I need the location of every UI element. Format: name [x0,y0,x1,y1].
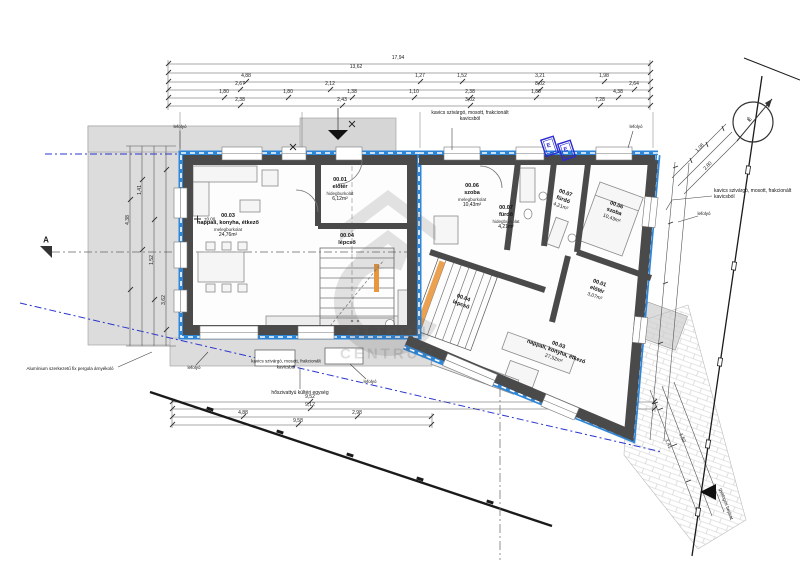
dim-label: 1,41 [137,185,143,195]
note-pergola: Alumínium szerkezetű fix pergola árnyéko… [26,366,113,372]
dim-label: 4,38 [125,215,131,225]
section-marker-label: A [43,236,49,245]
dim-label: 1,52 [149,255,155,265]
note-gravel-right: kavics szivárgó, mosott, frakcionált kav… [714,188,800,201]
plan-drawing [0,0,800,564]
note-gravel-left: kavics szivárgó, mosott, frakcionált kav… [247,358,325,369]
dim-label: 9,12 [305,402,315,408]
dim-label: 4,88 [238,410,248,416]
note-heat-pump: hőszivattyú kültéri egység [271,390,328,396]
dim-label: 2,64 [629,81,639,87]
watermark-text-line2: CENTRUM [340,346,436,363]
dim-label: 3,21 [535,73,545,79]
dim-label: 2,38 [235,97,245,103]
room-label-stairs: 00.04 lépcső [338,233,355,247]
dim-label: 2,67 [235,81,245,87]
dim-label: 2,43 [337,97,347,103]
dim-label: 1,80 [531,89,541,95]
dim-label: 4,88 [241,73,251,79]
dim-label: 17,94 [392,55,405,61]
room-label-bath1: 00.07 fürdő hidegburkolat 4,21m² [492,205,519,231]
dim-label: 1,27 [415,73,425,79]
dim-label: 4,38 [613,89,623,95]
dim-label: 3,62 [161,295,167,305]
note-drain: lefolyó [187,365,200,371]
dim-label: 1,52 [457,73,467,79]
dim-label: 2,98 [352,410,362,416]
dim-label: 1,10 [409,89,419,95]
dim-label: 1,98 [599,73,609,79]
level-marker-label: ±0,00 [204,217,215,222]
dim-label: 13,62 [350,64,363,70]
floor-plan-canvas: 17,94 13,62 4,88 1,27 1,52 3,21 1,98 2,6… [0,0,800,564]
room-label-room1: 00.06 szoba melegburkolat 10,43m² [458,183,486,209]
dim-label: 7,28 [595,97,605,103]
dim-label: 3,02 [465,97,475,103]
dim-label: 9,58 [293,418,303,424]
note-drain: lefolyó [363,379,376,385]
room-label-hall: 00.01 előtér hidegburkolat 6,12m² [326,177,353,203]
watermark-text-line1: OTTHON [347,324,428,341]
note-gravel-top: kavics szivárgó, mosott, frakcionált kav… [424,110,516,123]
dim-label: 2,12 [325,81,335,87]
dim-label: 1,80 [219,89,229,95]
note-drain: lefolyó [173,124,186,130]
dim-label: 2,38 [465,89,475,95]
section-marker-flag [40,246,52,258]
note-drain: lefolyó [629,124,642,130]
dim-label: 8,02 [535,81,545,87]
note-drain: lefolyó [697,211,710,217]
dim-label: 1,80 [283,89,293,95]
dim-label: 1,38 [347,89,357,95]
